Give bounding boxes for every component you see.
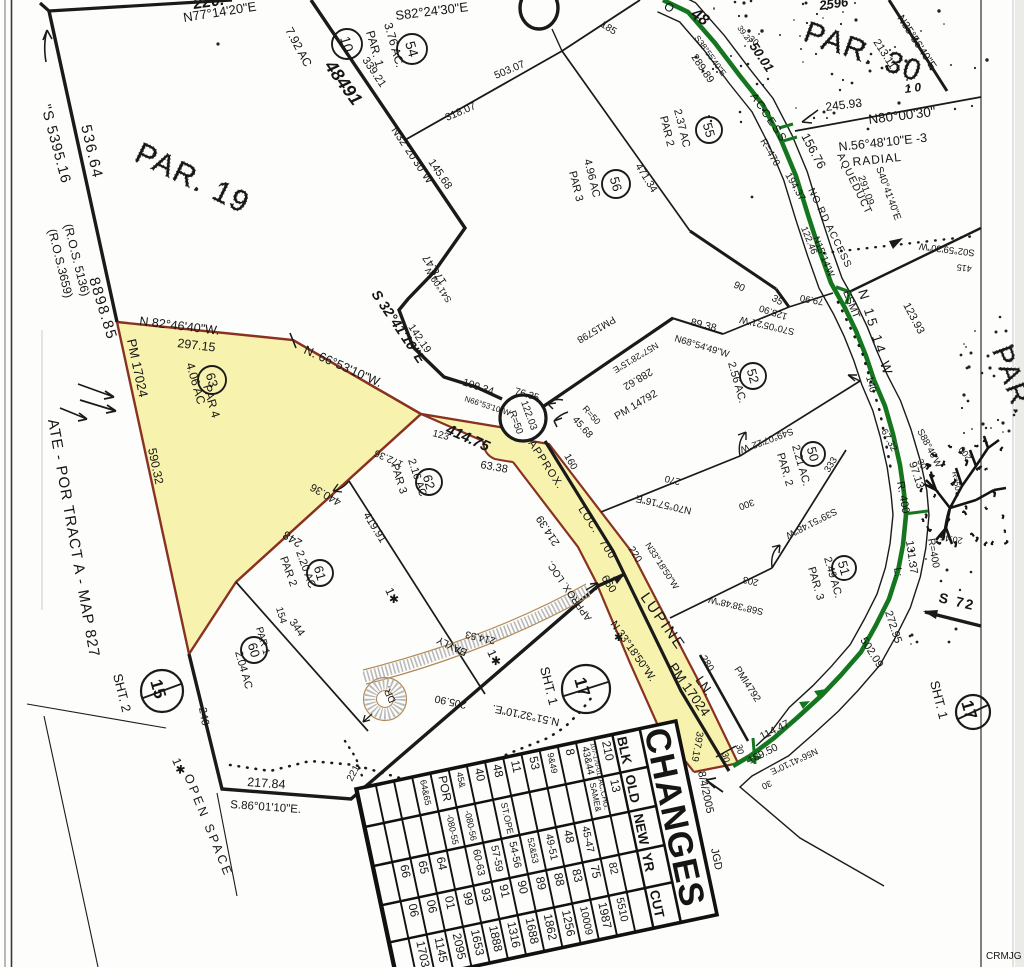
svg-text:✱: ✱ [614,632,623,644]
svg-text:30: 30 [734,743,746,755]
svg-text:CRMJG: CRMJG [986,951,1022,962]
svg-text:82: 82 [606,861,620,875]
svg-text:L:: L: [891,567,904,578]
svg-text:415: 415 [956,262,972,274]
svg-text:217.84: 217.84 [247,775,286,792]
svg-text:1 0: 1 0 [904,80,923,96]
svg-text:30: 30 [720,751,732,763]
